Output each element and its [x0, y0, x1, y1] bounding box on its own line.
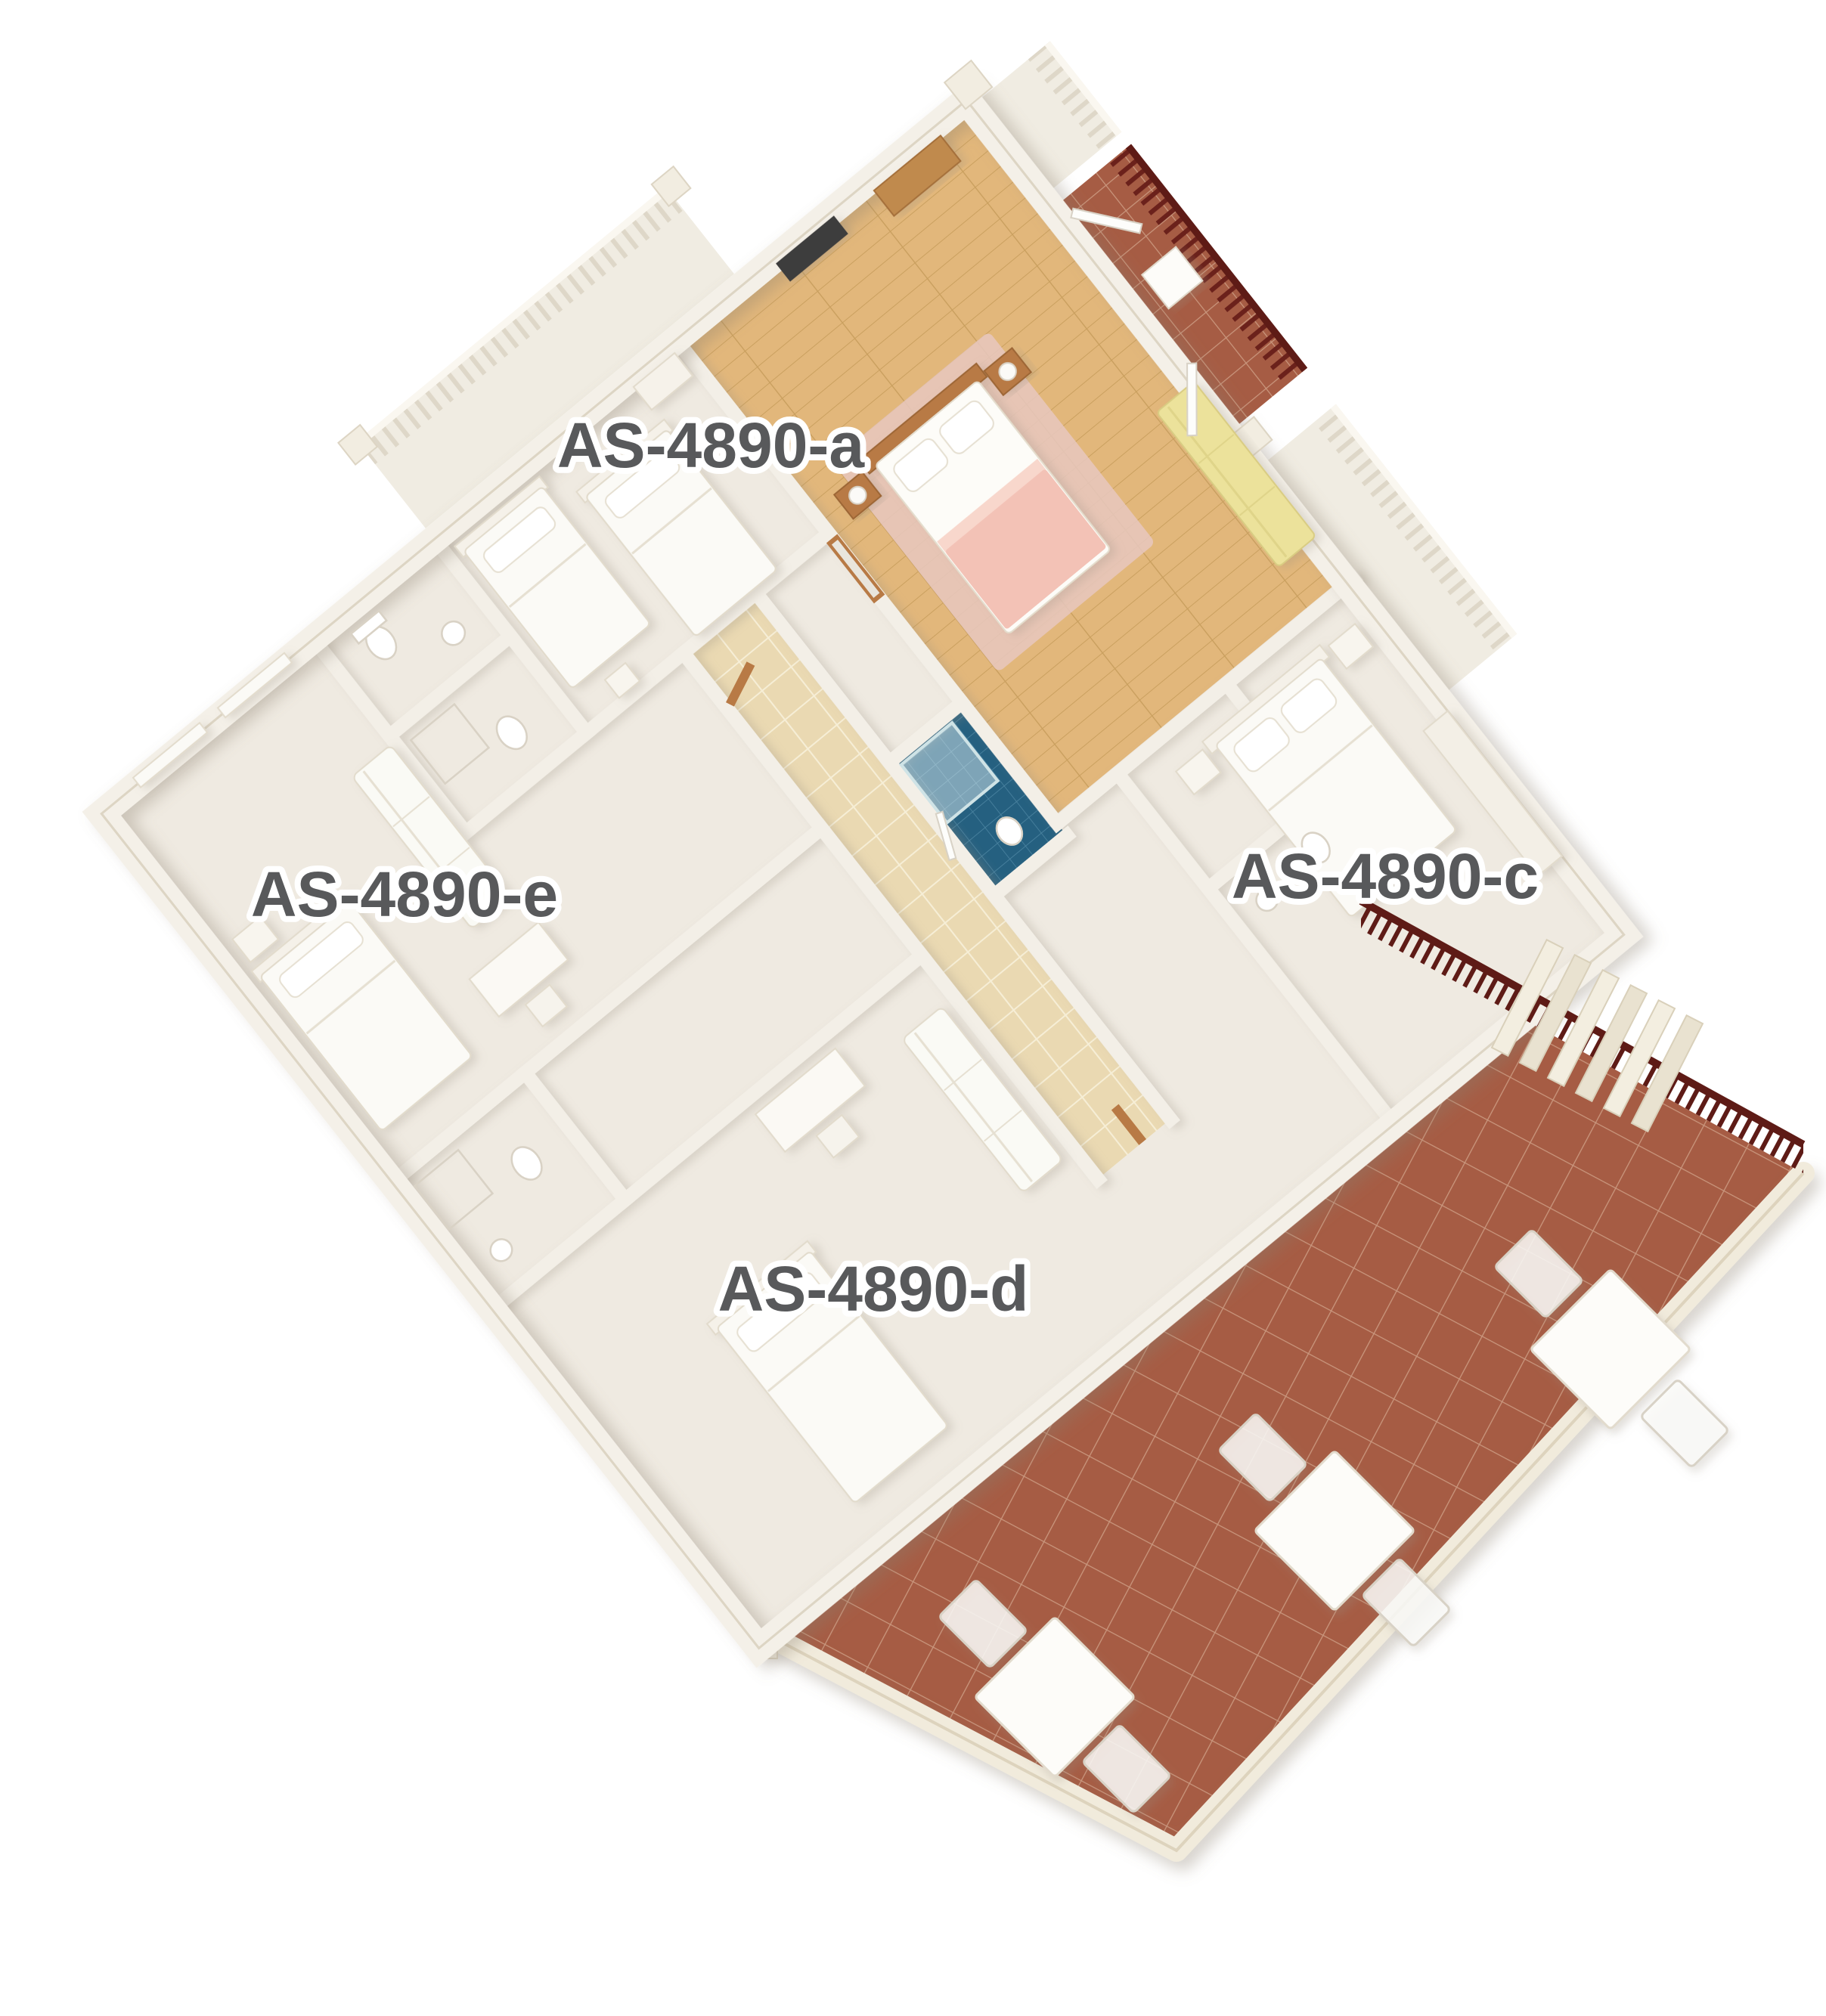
chair [1640, 1379, 1728, 1467]
room-label-c: AS-4890-c [1232, 841, 1539, 912]
floor-plan-scene: AS-4890-a AS-4890-e AS-4890-c AS-4890-d [0, 0, 1826, 2016]
room-label-d: AS-4890-d [718, 1253, 1029, 1324]
room-label-e: AS-4890-e [251, 859, 558, 930]
room-label-a: AS-4890-a [557, 410, 866, 481]
floor-plan-rendering: AS-4890-a AS-4890-e AS-4890-c AS-4890-d [0, 0, 1826, 2016]
